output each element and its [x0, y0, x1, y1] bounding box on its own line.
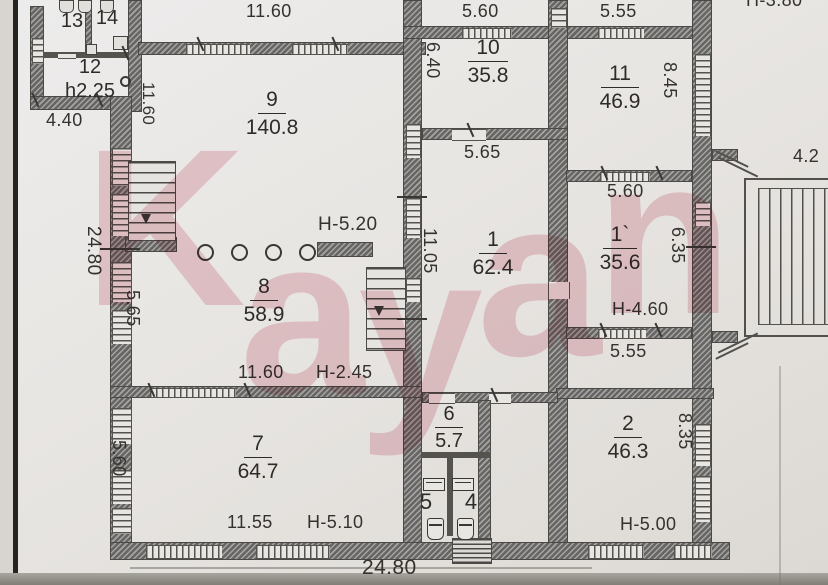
entrance-steps [452, 538, 492, 564]
dim-bottom-7: 11.55 [227, 513, 273, 531]
window-segment [256, 545, 330, 559]
floor-plan-scan: 13 14 12h2.25 9140.8 1035.8 1146.9 162.4… [0, 0, 828, 585]
scan-left-paper-edge [0, 0, 13, 585]
window-segment [598, 28, 644, 39]
scan-crease [779, 366, 781, 585]
room-label-14: 14 [87, 7, 127, 29]
window-segment [695, 424, 711, 466]
dim-stair-4-2: 4.2 [793, 147, 819, 165]
column [120, 76, 131, 87]
dim-top-9: 11.60 [246, 2, 292, 20]
dim-top-10: 5.60 [462, 2, 499, 20]
dim-6-40: 6.40 [424, 42, 442, 79]
dimension-line [130, 567, 592, 569]
dim-left-5-60: 5.60 [110, 440, 128, 477]
window-segment [695, 476, 711, 522]
wall-segment [478, 400, 491, 542]
wall-segment [447, 458, 453, 536]
dim-top-right-cut: Н-3.80 [746, 0, 826, 9]
dim-annex-4-40: 4.40 [46, 111, 83, 129]
external-staircase-steps [758, 188, 828, 325]
toilet-icon [457, 518, 474, 540]
height-label-5-10: Н-5.10 [307, 513, 363, 531]
window-segment [150, 388, 236, 398]
height-label-5-00: Н-5.00 [620, 515, 676, 533]
scan-left-black-line [13, 0, 18, 585]
room-label-5: 5 [413, 490, 439, 514]
window-segment [112, 508, 132, 534]
window-segment [292, 44, 348, 55]
room-label-2: 246.3 [588, 412, 668, 463]
window-segment [146, 545, 222, 559]
dim-8-45: 8.45 [661, 62, 679, 99]
wall-segment [138, 42, 426, 55]
window-segment [32, 38, 44, 64]
plumbing-fixture [113, 36, 128, 50]
dim-top-11: 5.55 [600, 2, 637, 20]
window-segment [186, 44, 250, 55]
toilet-icon [427, 518, 444, 540]
window-segment [112, 408, 132, 444]
room-label-12: 12h2.25 [60, 56, 120, 102]
room-label-11: 1146.9 [580, 62, 660, 113]
plumbing-fixture [86, 44, 97, 55]
watermark: Kayan [84, 116, 726, 340]
dim-bottom-24-80: 24.80 [362, 557, 417, 578]
room-label-10: 1035.8 [448, 36, 528, 87]
window-segment [588, 545, 644, 559]
room-label-13: 13 [52, 10, 92, 32]
window-segment [551, 8, 567, 28]
room-label-4: 4 [458, 490, 484, 514]
window-segment [674, 545, 712, 559]
dim-8-35: 8.35 [676, 413, 694, 450]
